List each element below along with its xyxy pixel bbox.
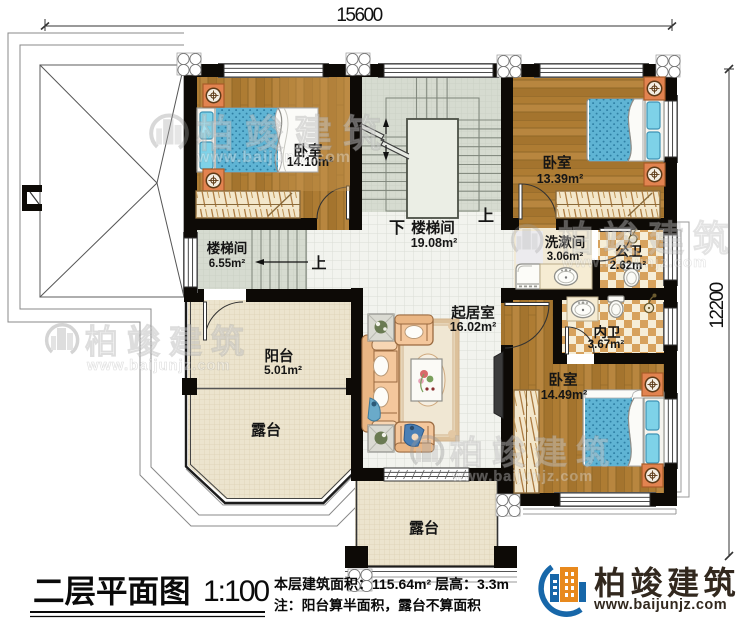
svg-text:www.baijunjz.com: www.baijunjz.com — [451, 469, 593, 485]
svg-text:柏竣建筑: 柏竣建筑 — [85, 323, 253, 360]
svg-text:楼梯间: 楼梯间 — [207, 240, 248, 256]
svg-text:1:100: 1:100 — [203, 575, 269, 608]
svg-text:露台: 露台 — [409, 519, 439, 537]
svg-text:露台: 露台 — [251, 421, 281, 439]
svg-text:www.baijunjz.com: www.baijunjz.com — [593, 597, 727, 613]
svg-text:柏竣建筑: 柏竣建筑 — [450, 434, 618, 471]
svg-text:13.39m²: 13.39m² — [537, 172, 584, 186]
svg-text:19.08m²: 19.08m² — [411, 236, 458, 250]
svg-text:内卫: 内卫 — [594, 324, 622, 340]
svg-text:14.49m²: 14.49m² — [541, 388, 588, 402]
svg-text:注：阳台算半面积，露台不算面积: 注：阳台算半面积，露台不算面积 — [274, 597, 481, 613]
svg-text:上: 上 — [478, 207, 494, 225]
svg-text:5.01m²: 5.01m² — [264, 363, 302, 377]
svg-text:15600: 15600 — [336, 5, 382, 26]
svg-text:12200: 12200 — [707, 282, 728, 328]
svg-text:柏竣建筑: 柏竣建筑 — [558, 218, 738, 259]
svg-text:二层平面图: 二层平面图 — [33, 573, 191, 609]
svg-text:卧室: 卧室 — [549, 371, 578, 389]
svg-text:6.55m²: 6.55m² — [209, 258, 246, 270]
svg-text:www.baijunjz.com: www.baijunjz.com — [561, 254, 707, 271]
svg-text:本层建筑面积：115.64m² 层高：3.3m: 本层建筑面积：115.64m² 层高：3.3m — [274, 576, 509, 592]
svg-text:上: 上 — [311, 255, 326, 272]
svg-text:下: 下 — [389, 220, 405, 237]
svg-text:16.02m²: 16.02m² — [450, 320, 497, 334]
svg-text:楼梯间: 楼梯间 — [411, 219, 455, 237]
svg-text:www.baijunjz.com: www.baijunjz.com — [86, 358, 231, 374]
svg-text:卧室: 卧室 — [543, 154, 572, 172]
svg-text:www.baijunjz.com: www.baijunjz.com — [196, 149, 351, 166]
svg-text:3.67m²: 3.67m² — [588, 339, 625, 351]
svg-text:柏竣建筑: 柏竣建筑 — [594, 565, 740, 601]
